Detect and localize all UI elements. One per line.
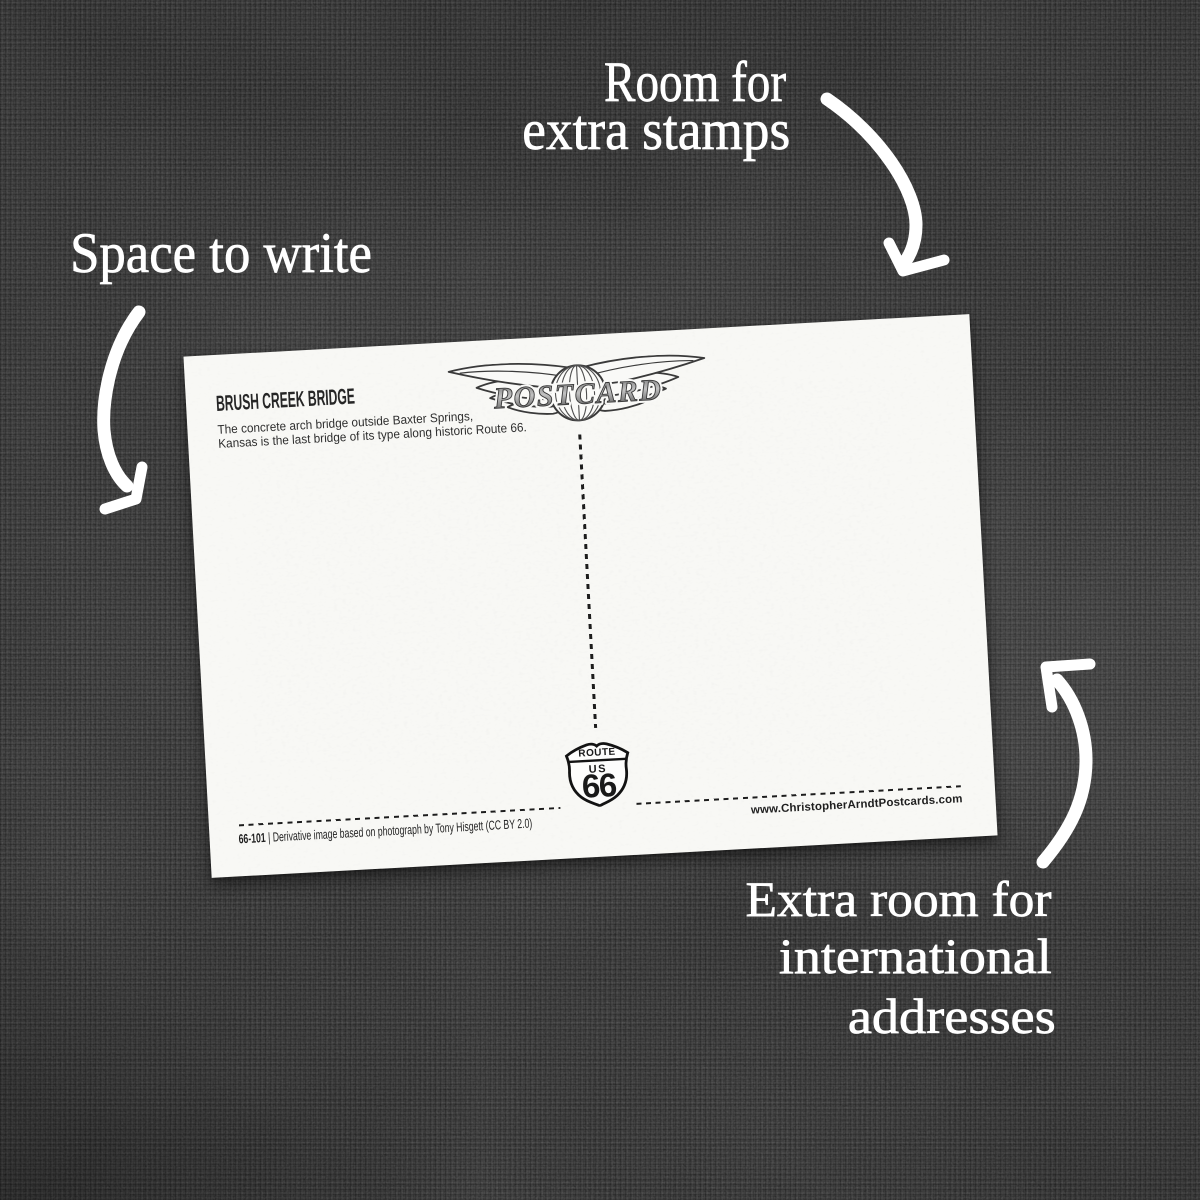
- svg-text:ROUTE: ROUTE: [578, 746, 616, 759]
- svg-text:66: 66: [581, 765, 618, 804]
